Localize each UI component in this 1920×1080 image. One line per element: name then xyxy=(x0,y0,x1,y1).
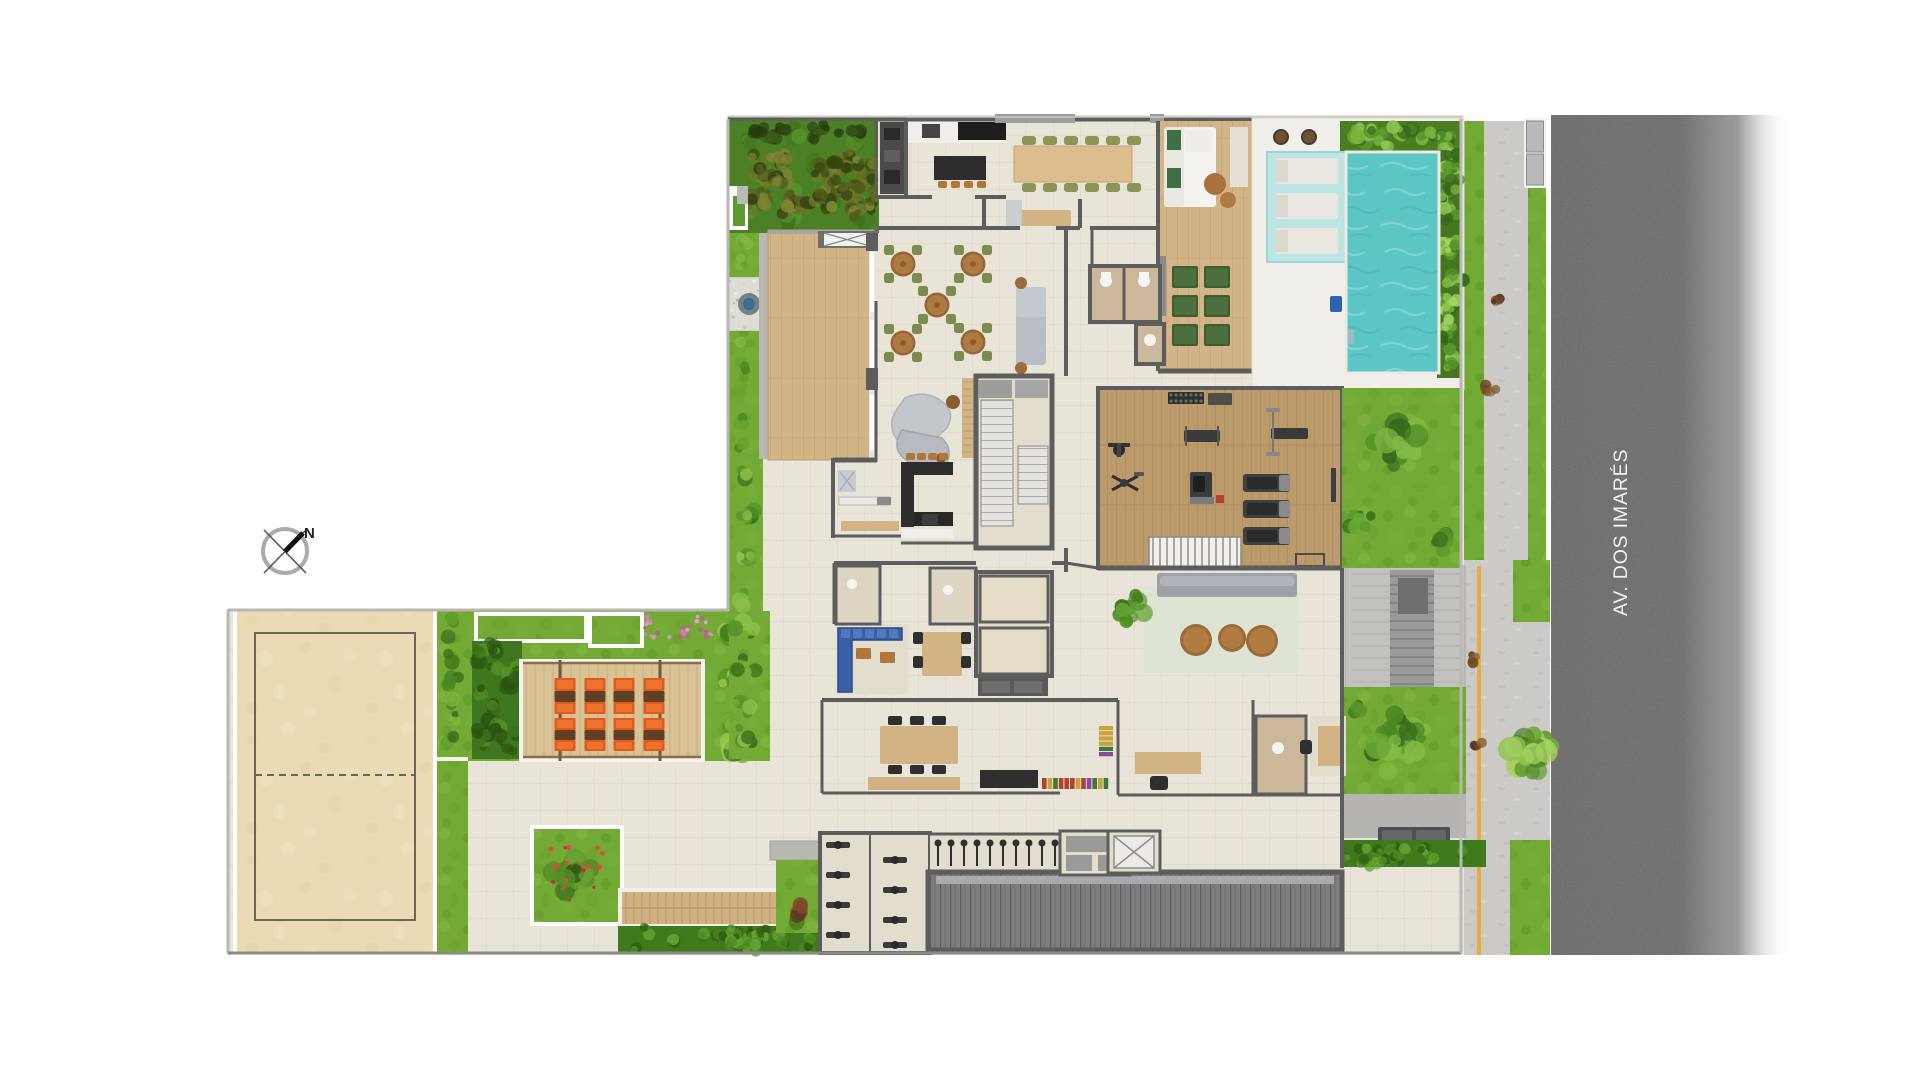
svg-text:N: N xyxy=(304,525,315,542)
svg-text:AV. DOS IMARÉS: AV. DOS IMARÉS xyxy=(1609,449,1632,616)
